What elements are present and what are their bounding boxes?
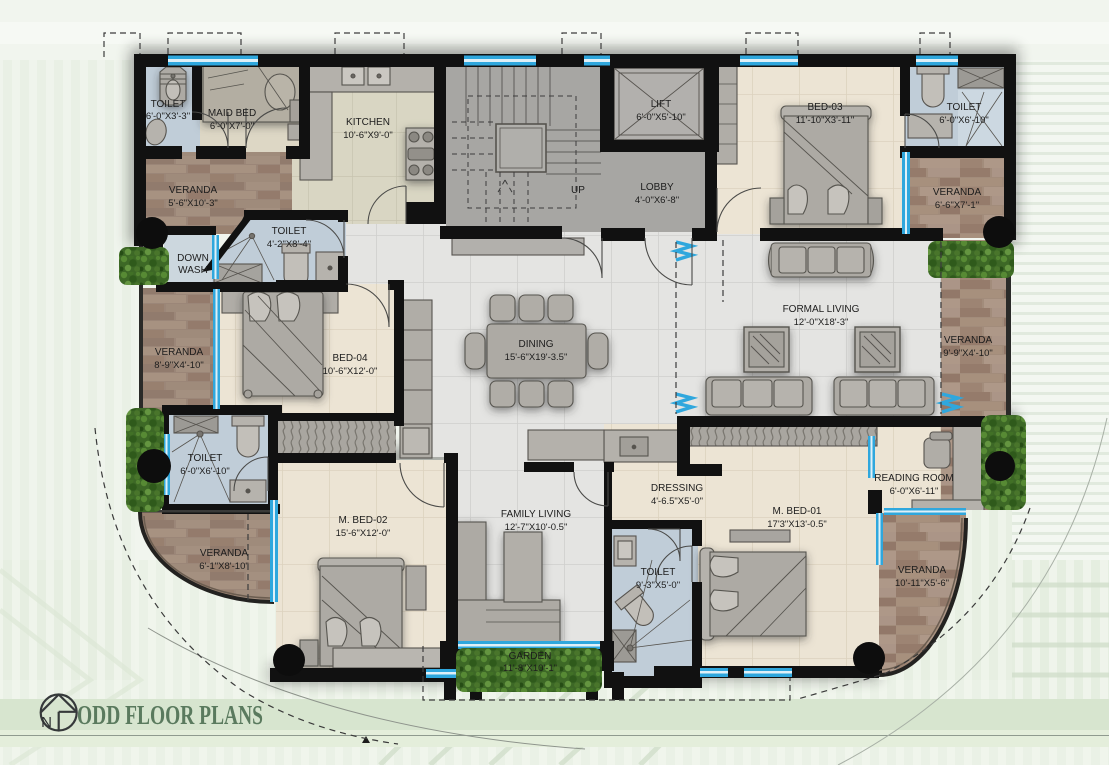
svg-text:9'-9"X4'-10": 9'-9"X4'-10"	[943, 348, 992, 359]
svg-text:M. BED-01: M. BED-01	[773, 506, 822, 517]
svg-text:VERANDA: VERANDA	[898, 565, 947, 576]
svg-text:KITCHEN: KITCHEN	[346, 117, 390, 128]
svg-text:VERANDA: VERANDA	[933, 187, 982, 198]
svg-text:N: N	[41, 714, 52, 731]
svg-text:TOILET: TOILET	[272, 226, 307, 237]
svg-text:6'-0"X6'-10": 6'-0"X6'-10"	[939, 115, 988, 126]
svg-text:VERANDA: VERANDA	[155, 347, 204, 358]
svg-text:15'-6"X12'-0": 15'-6"X12'-0"	[336, 528, 391, 539]
svg-text:6'-0"X5'-10": 6'-0"X5'-10"	[636, 112, 685, 123]
svg-text:10'-11"X5'-6": 10'-11"X5'-6"	[895, 578, 949, 589]
svg-text:FAMILY LIVING: FAMILY LIVING	[501, 509, 571, 520]
svg-text:4'-6.5"X5'-0": 4'-6.5"X5'-0"	[651, 496, 703, 507]
svg-text:15'-6"X19'-3.5": 15'-6"X19'-3.5"	[505, 352, 568, 363]
svg-text:10'-6"X9'-0": 10'-6"X9'-0"	[343, 130, 392, 141]
svg-text:6'-0"X6'-10": 6'-0"X6'-10"	[180, 466, 229, 477]
svg-text:VERANDA: VERANDA	[169, 185, 218, 196]
svg-text:LOBBY: LOBBY	[640, 182, 674, 193]
svg-text:UP: UP	[571, 185, 585, 196]
svg-text:11'-10"X3'-11": 11'-10"X3'-11"	[796, 115, 855, 126]
svg-text:11'-8"X10'-1": 11'-8"X10'-1"	[503, 663, 557, 674]
svg-text:6'-0"X6'-11": 6'-0"X6'-11"	[890, 486, 939, 497]
svg-text:BED-04: BED-04	[332, 353, 367, 364]
svg-text:17'3"X13'-0.5": 17'3"X13'-0.5"	[767, 519, 827, 530]
svg-text:9'-3"X5'-0": 9'-3"X5'-0"	[636, 580, 680, 591]
svg-text:M. BED-02: M. BED-02	[339, 515, 388, 526]
svg-text:5'-6"X10'-3": 5'-6"X10'-3"	[168, 198, 217, 209]
svg-text:DOWN: DOWN	[177, 253, 209, 264]
svg-text:4'-2"X8'-4": 4'-2"X8'-4"	[267, 239, 311, 250]
svg-text:DINING: DINING	[519, 339, 554, 350]
svg-text:VERANDA: VERANDA	[944, 335, 993, 346]
svg-text:READING ROOM: READING ROOM	[874, 473, 953, 484]
svg-text:12'-0"X18'-3": 12'-0"X18'-3"	[794, 317, 849, 328]
svg-text:LIFT: LIFT	[651, 99, 672, 110]
svg-text:FORMAL LIVING: FORMAL LIVING	[783, 304, 860, 315]
svg-text:TOILET: TOILET	[947, 102, 982, 113]
svg-text:TOILET: TOILET	[151, 99, 186, 110]
svg-text:6'-0"X3'-3": 6'-0"X3'-3"	[146, 111, 190, 122]
svg-text:TOILET: TOILET	[641, 567, 676, 578]
svg-text:WASH: WASH	[178, 265, 208, 276]
svg-text:4'-0"X6'-8": 4'-0"X6'-8"	[635, 195, 679, 206]
svg-text:6'-0"X7'-0": 6'-0"X7'-0"	[210, 121, 254, 132]
svg-text:8'-9"X4'-10": 8'-9"X4'-10"	[154, 360, 203, 371]
svg-text:10'-6"X12'-0": 10'-6"X12'-0"	[323, 366, 378, 377]
svg-text:6'-6"X7'-1": 6'-6"X7'-1"	[935, 200, 979, 211]
svg-text:MAID BED: MAID BED	[208, 108, 256, 119]
svg-text:6'-1"X8'-10": 6'-1"X8'-10"	[199, 561, 248, 572]
svg-text:BED-03: BED-03	[807, 102, 842, 113]
svg-text:VERANDA: VERANDA	[200, 548, 249, 559]
svg-text:GARDEN: GARDEN	[509, 651, 552, 662]
svg-text:ODD FLOOR PLANS: ODD FLOOR PLANS	[77, 700, 263, 730]
svg-text:DRESSING: DRESSING	[651, 483, 703, 494]
svg-text:12'-7"X10'-0.5": 12'-7"X10'-0.5"	[505, 522, 568, 533]
svg-text:TOILET: TOILET	[188, 453, 223, 464]
